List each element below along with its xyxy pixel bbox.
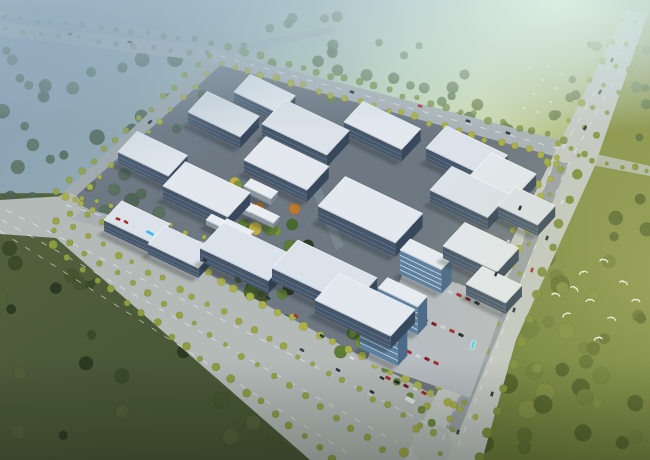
- tree: [419, 83, 430, 94]
- street-tree: [326, 371, 331, 376]
- street-tree: [379, 447, 386, 454]
- street-tree: [398, 109, 404, 115]
- street-tree: [35, 19, 40, 24]
- street-tree: [161, 301, 167, 307]
- tree: [11, 424, 26, 439]
- street-tree: [136, 115, 142, 121]
- tree: [406, 81, 415, 90]
- tree: [616, 436, 629, 449]
- street-tree: [370, 82, 377, 89]
- street-tree: [418, 406, 425, 413]
- tree: [629, 430, 643, 444]
- street-tree: [124, 300, 130, 306]
- street-tree: [411, 113, 418, 120]
- street-tree: [493, 407, 501, 415]
- tree: [13, 366, 26, 379]
- street-tree: [482, 137, 487, 142]
- street-tree: [55, 32, 61, 38]
- street-tree: [197, 356, 203, 362]
- street-tree: [316, 89, 322, 95]
- tree: [576, 389, 593, 406]
- street-tree: [258, 398, 264, 404]
- tree: [460, 69, 470, 79]
- street-tree: [39, 32, 43, 36]
- street-tree: [244, 68, 250, 74]
- street-tree: [473, 414, 479, 420]
- street-tree: [160, 275, 166, 281]
- street-tree: [196, 62, 201, 67]
- street-tree: [399, 448, 409, 458]
- street-tree: [548, 176, 554, 182]
- tree: [79, 356, 93, 370]
- bird-distant: [533, 93, 535, 95]
- street-tree: [471, 110, 477, 116]
- tree: [6, 305, 16, 315]
- street-tree: [525, 314, 534, 323]
- bird: [632, 299, 640, 302]
- street-tree: [428, 419, 436, 427]
- street-tree: [599, 58, 605, 64]
- tree: [2, 241, 17, 256]
- street-tree: [62, 193, 70, 201]
- tree: [518, 441, 531, 454]
- street-tree: [238, 353, 245, 360]
- street-tree: [553, 161, 559, 167]
- street-tree: [517, 337, 527, 347]
- street-tree: [512, 143, 519, 150]
- street-tree: [447, 416, 453, 422]
- street-tree: [192, 36, 198, 42]
- street-tree: [223, 342, 227, 346]
- street-tree: [587, 77, 592, 82]
- tree: [16, 74, 25, 83]
- street-tree: [327, 74, 334, 81]
- tree: [0, 289, 8, 305]
- street-tree: [364, 434, 371, 441]
- bird: [562, 312, 570, 317]
- tree: [59, 431, 68, 440]
- street-tree: [327, 93, 333, 99]
- street-tree: [95, 278, 101, 284]
- tree: [575, 425, 592, 442]
- aerial-photo: [0, 0, 650, 460]
- street-tree: [255, 362, 260, 367]
- road-northeast-stub: [222, 26, 336, 58]
- street-tree: [112, 137, 118, 143]
- tree: [3, 47, 11, 55]
- street-tree: [115, 252, 122, 259]
- street-tree: [80, 267, 86, 273]
- street-tree: [462, 400, 467, 405]
- street-tree: [614, 64, 619, 69]
- road-intersection: [212, 50, 224, 62]
- street-tree: [177, 286, 184, 293]
- tree: [8, 256, 23, 271]
- tree: [334, 345, 347, 358]
- street-tree: [70, 224, 76, 230]
- street-tree: [115, 270, 120, 275]
- street-tree: [427, 100, 434, 107]
- tree: [115, 369, 130, 384]
- street-tree: [299, 322, 308, 331]
- street-tree: [152, 45, 157, 50]
- road-north-stub: [213, 0, 227, 52]
- bird-distant: [550, 101, 552, 103]
- street-tree: [400, 94, 406, 100]
- bird: [620, 280, 628, 285]
- street-tree: [169, 334, 175, 340]
- tree: [569, 76, 576, 83]
- tree: [11, 160, 25, 174]
- street-tree: [64, 254, 70, 260]
- street-tree: [96, 261, 102, 267]
- street-tree: [286, 61, 293, 68]
- street-tree: [53, 218, 60, 225]
- street-tree: [128, 29, 134, 35]
- street-tree: [339, 377, 345, 383]
- street-tree: [430, 429, 437, 436]
- street-tree: [589, 158, 594, 163]
- street-tree: [401, 412, 406, 417]
- street-tree: [572, 169, 582, 179]
- street-tree: [636, 45, 642, 51]
- street-tree: [67, 211, 73, 217]
- tree: [642, 46, 650, 55]
- tree: [0, 104, 10, 119]
- street-tree: [620, 165, 624, 169]
- street-tree: [329, 338, 336, 345]
- bird-distant: [556, 87, 558, 89]
- tree: [566, 93, 575, 102]
- street-tree: [271, 373, 277, 379]
- street-tree: [333, 415, 339, 421]
- street-tree: [313, 69, 320, 76]
- bird-distant: [561, 73, 563, 75]
- street-tree: [149, 107, 154, 112]
- street-tree: [161, 33, 167, 39]
- street-tree: [129, 260, 133, 264]
- street-tree: [227, 375, 235, 383]
- tree: [610, 232, 619, 241]
- street-tree: [207, 332, 212, 337]
- street-tree: [113, 41, 118, 46]
- tree: [320, 14, 329, 23]
- street-tree: [605, 110, 609, 114]
- tree: [59, 151, 68, 160]
- street-tree: [168, 48, 173, 53]
- tree: [24, 81, 33, 90]
- tree: [332, 65, 343, 76]
- street-tree: [49, 240, 58, 249]
- street-tree: [267, 336, 273, 342]
- tree: [27, 139, 40, 152]
- tree: [593, 367, 610, 384]
- street-tree: [295, 355, 300, 360]
- street-tree: [66, 177, 73, 184]
- tree: [66, 82, 79, 95]
- tree: [388, 73, 399, 84]
- street-tree: [384, 401, 391, 408]
- street-tree: [212, 363, 220, 371]
- street-tree: [176, 312, 183, 319]
- street-tree: [146, 31, 150, 35]
- street-tree: [246, 293, 254, 301]
- street-tree: [517, 271, 521, 275]
- street-tree: [90, 207, 96, 213]
- street-tree: [131, 44, 137, 50]
- street-tree: [302, 392, 309, 399]
- bird-distant: [529, 67, 531, 69]
- bird: [608, 316, 616, 320]
- tree: [400, 51, 408, 59]
- street-tree: [274, 309, 281, 316]
- street-tree: [387, 87, 393, 93]
- street-tree: [259, 301, 267, 309]
- street-tree: [310, 362, 315, 367]
- street-tree: [544, 158, 551, 165]
- street-tree: [73, 197, 78, 202]
- street-tree: [538, 267, 547, 276]
- street-tree: [632, 164, 638, 170]
- street-tree: [557, 166, 563, 172]
- street-tree: [484, 117, 492, 125]
- tree: [222, 429, 239, 446]
- street-tree: [221, 308, 227, 314]
- tree: [21, 122, 29, 130]
- bird: [579, 270, 587, 274]
- tree: [87, 331, 96, 340]
- tree: [135, 52, 150, 67]
- tree: [642, 85, 649, 92]
- street-tree: [301, 65, 306, 70]
- tree: [214, 392, 231, 409]
- street-tree: [96, 40, 101, 45]
- tree: [558, 323, 575, 340]
- tree: [375, 39, 382, 46]
- street-tree: [91, 159, 97, 165]
- street-tree: [317, 444, 323, 450]
- street-tree: [85, 233, 91, 239]
- street-tree: [357, 386, 363, 392]
- street-tree: [517, 125, 524, 132]
- tree: [532, 363, 542, 373]
- street-tree: [567, 118, 571, 122]
- street-tree: [3, 26, 7, 30]
- tree: [39, 79, 52, 92]
- tree: [116, 405, 129, 418]
- street-tree: [450, 427, 455, 432]
- street-tree: [189, 294, 195, 300]
- street-tree: [144, 289, 151, 296]
- street-tree: [175, 36, 180, 41]
- street-tree: [205, 50, 210, 55]
- bird: [571, 286, 579, 292]
- street-tree: [182, 72, 188, 78]
- street-tree: [192, 321, 197, 326]
- tree: [534, 395, 553, 414]
- tree: [636, 134, 643, 141]
- street-tree: [605, 162, 609, 166]
- street-tree: [345, 346, 352, 353]
- street-tree: [554, 219, 563, 228]
- street-tree: [101, 146, 107, 152]
- street-tree: [482, 428, 492, 438]
- street-tree: [18, 16, 22, 20]
- tree: [636, 313, 646, 323]
- street-tree: [624, 42, 629, 47]
- street-tree: [526, 146, 533, 153]
- tree: [89, 130, 104, 145]
- street-tree: [109, 203, 114, 208]
- street-tree: [95, 199, 99, 203]
- street-tree: [566, 196, 574, 204]
- tree: [136, 189, 147, 200]
- street-tree: [160, 93, 166, 99]
- street-tree: [438, 451, 443, 456]
- street-tree: [611, 39, 616, 44]
- street-tree: [500, 385, 508, 393]
- tree: [286, 219, 298, 231]
- street-tree: [593, 132, 600, 139]
- street-tree: [157, 119, 163, 125]
- tree: [416, 42, 423, 49]
- street-tree: [204, 71, 209, 76]
- street-tree: [341, 74, 348, 81]
- tree: [602, 255, 615, 268]
- street-tree: [67, 239, 74, 246]
- tree: [517, 427, 532, 442]
- street-tree: [342, 95, 348, 101]
- street-tree: [644, 169, 648, 173]
- tree: [265, 436, 274, 445]
- street-tree: [123, 127, 129, 133]
- street-tree: [601, 83, 605, 87]
- tree: [86, 67, 96, 77]
- tree: [635, 194, 646, 205]
- tree: [554, 111, 561, 118]
- street-tree: [498, 139, 505, 146]
- street-tree: [273, 75, 280, 82]
- street-tree: [500, 119, 506, 125]
- street-tree: [370, 397, 376, 403]
- street-tree: [578, 99, 585, 106]
- street-tree: [193, 84, 199, 90]
- street-tree: [82, 251, 87, 256]
- street-tree: [582, 151, 588, 157]
- street-tree: [79, 168, 86, 175]
- street-tree: [414, 95, 419, 100]
- street-tree: [205, 302, 210, 307]
- street-tree: [287, 80, 294, 87]
- tree: [286, 18, 294, 26]
- street-tree: [545, 131, 550, 136]
- street-tree: [99, 25, 104, 30]
- street-tree: [186, 49, 192, 55]
- street-tree: [77, 35, 81, 39]
- street-tree: [137, 309, 144, 316]
- street-tree: [87, 184, 93, 190]
- street-tree: [285, 422, 292, 429]
- street-tree: [426, 121, 431, 126]
- street-tree: [225, 43, 232, 50]
- street-tree: [53, 189, 59, 195]
- tree: [579, 355, 593, 369]
- tree: [46, 155, 55, 164]
- street-tree: [617, 90, 622, 95]
- tree: [312, 55, 324, 67]
- street-tree: [202, 235, 207, 240]
- street-tree: [619, 18, 624, 23]
- street-tree: [626, 66, 632, 72]
- tree: [543, 316, 554, 327]
- street-tree: [183, 342, 191, 350]
- street-tree: [147, 130, 151, 134]
- street-tree: [532, 290, 541, 299]
- street-tree: [427, 390, 434, 397]
- street-tree: [168, 108, 172, 112]
- street-tree: [79, 196, 84, 201]
- tree: [7, 55, 18, 66]
- street-tree: [130, 280, 136, 286]
- tree: [108, 184, 120, 196]
- tree: [640, 222, 650, 236]
- street-tree: [633, 20, 636, 23]
- tree: [587, 342, 600, 355]
- street-tree: [251, 326, 258, 333]
- street-tree: [556, 141, 562, 147]
- street-tree: [154, 319, 161, 326]
- street-tree: [220, 61, 225, 66]
- street-tree: [79, 22, 85, 28]
- tree: [246, 415, 261, 430]
- bird-distant: [523, 107, 525, 109]
- street-tree: [20, 30, 25, 35]
- street-tree: [537, 152, 544, 159]
- tree: [631, 82, 642, 93]
- street-tree: [300, 82, 305, 87]
- street-tree: [569, 146, 574, 151]
- street-tree: [509, 360, 518, 369]
- tree: [447, 81, 459, 93]
- tree: [627, 395, 643, 411]
- street-tree: [458, 110, 463, 115]
- street-tree: [356, 78, 363, 85]
- street-tree: [280, 342, 287, 349]
- street-tree: [48, 20, 52, 24]
- street-tree: [145, 270, 151, 276]
- street-tree: [78, 201, 84, 207]
- tree: [472, 99, 484, 111]
- street-tree: [528, 127, 535, 134]
- tree: [38, 91, 50, 103]
- tree: [587, 41, 594, 48]
- street-tree: [97, 175, 102, 180]
- tree: [556, 363, 570, 377]
- scene-canvas: [0, 0, 650, 460]
- street-tree: [257, 52, 265, 60]
- tree: [327, 47, 338, 58]
- street-tree: [317, 403, 323, 409]
- bird-distant: [546, 65, 548, 67]
- tree: [172, 124, 181, 133]
- street-tree: [272, 411, 279, 418]
- street-tree: [171, 85, 177, 91]
- street-tree: [577, 153, 581, 157]
- street-tree: [548, 193, 552, 197]
- street-tree: [236, 318, 243, 325]
- tree: [592, 398, 602, 408]
- street-tree: [442, 104, 449, 111]
